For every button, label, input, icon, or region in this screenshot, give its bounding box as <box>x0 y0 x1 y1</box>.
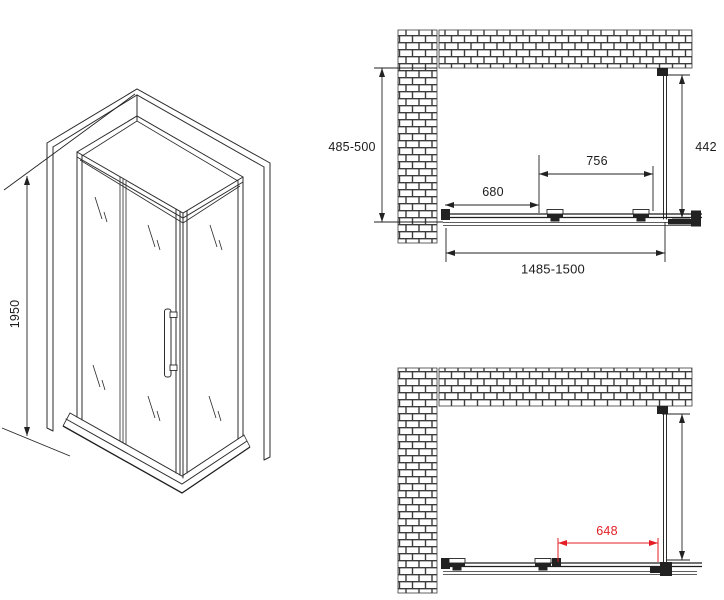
wall-profile <box>441 209 450 220</box>
dim-label-door-width: 756 <box>586 154 607 168</box>
door-roller <box>535 559 551 571</box>
iso-door-handle <box>165 309 178 377</box>
dim-label-depth: 485-500 <box>328 140 375 154</box>
side-panel-glass <box>657 406 668 563</box>
iso-top-frame <box>77 116 243 223</box>
glass-sparkle-marks <box>93 197 222 421</box>
door-track <box>441 558 702 576</box>
plan-view-closed <box>374 30 702 262</box>
dim-label-total-width: 1485-1500 <box>521 262 585 277</box>
dim-label-opening-width: 648 <box>596 524 617 538</box>
iso-height-dimension <box>2 94 135 456</box>
iso-walls <box>47 89 270 460</box>
side-panel-glass <box>657 68 668 219</box>
plan-open-dimensions <box>558 414 690 562</box>
dim-label-fixed-width: 680 <box>482 185 503 199</box>
dim-label-height: 1950 <box>8 300 22 329</box>
wall-hatch-left <box>398 30 437 243</box>
plan-view-open <box>398 368 702 593</box>
door-roller <box>449 559 465 571</box>
iso-glass-panels <box>77 152 243 478</box>
wall-hatch-left <box>398 368 437 593</box>
isometric-view <box>2 89 270 493</box>
door-roller <box>547 210 563 222</box>
drawing-canvas <box>0 0 724 600</box>
wall-hatch-top <box>439 368 692 406</box>
dim-label-side-panel: 442 <box>695 140 716 154</box>
door-track <box>441 209 702 227</box>
door-edge <box>552 558 561 566</box>
iso-base-tray <box>63 413 250 493</box>
door-roller <box>633 210 649 222</box>
wall-hatch-top <box>439 30 692 68</box>
technical-drawing-page: 1950 485-500 442 756 680 1485-1500 648 <box>0 0 724 600</box>
